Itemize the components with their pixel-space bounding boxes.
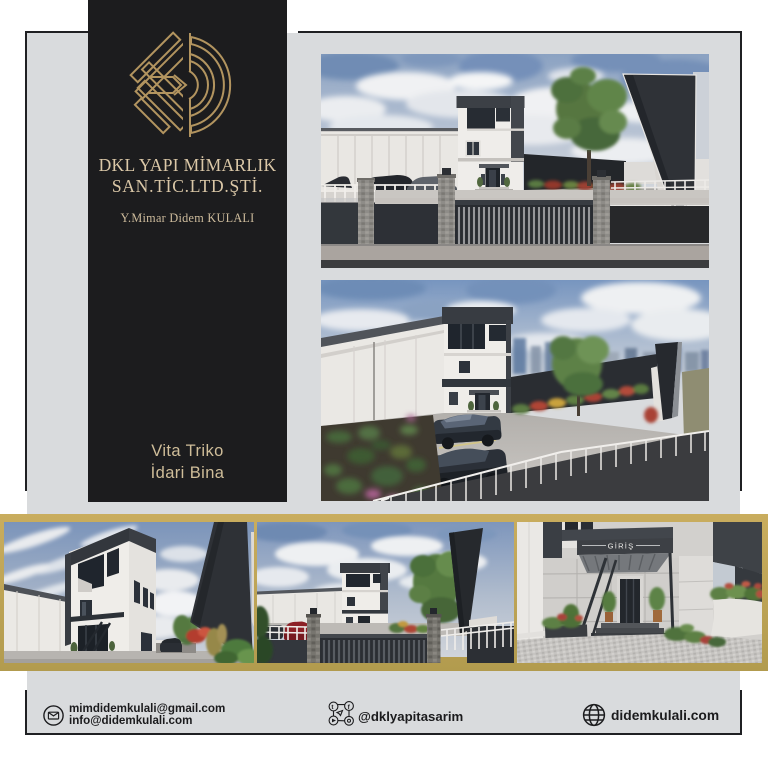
svg-text:GİRİŞ: GİRİŞ: [607, 542, 634, 551]
svg-text:t: t: [331, 704, 334, 711]
